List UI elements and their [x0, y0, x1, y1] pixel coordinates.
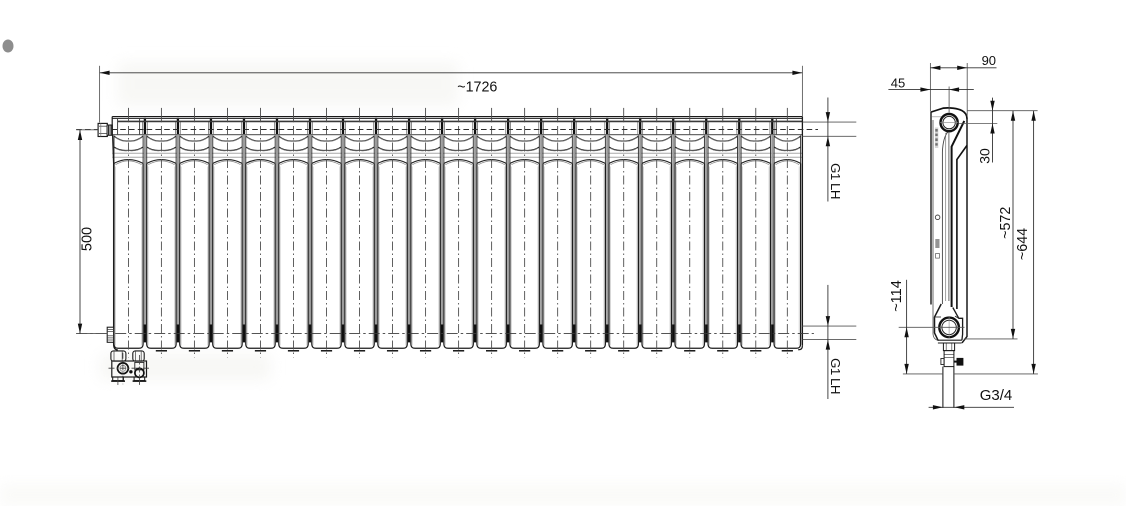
svg-text:45: 45	[891, 76, 905, 91]
svg-text:90: 90	[982, 53, 996, 68]
svg-text:~572: ~572	[998, 207, 1014, 239]
svg-text:G1 LH: G1 LH	[828, 358, 843, 394]
svg-text:~644: ~644	[1015, 228, 1031, 260]
svg-text:500: 500	[79, 227, 95, 251]
svg-text:~114: ~114	[889, 280, 905, 312]
svg-text:~1726: ~1726	[457, 80, 497, 96]
svg-text:30: 30	[977, 148, 993, 164]
svg-text:G3/4: G3/4	[980, 387, 1013, 404]
svg-text:G1 LH: G1 LH	[828, 163, 843, 199]
